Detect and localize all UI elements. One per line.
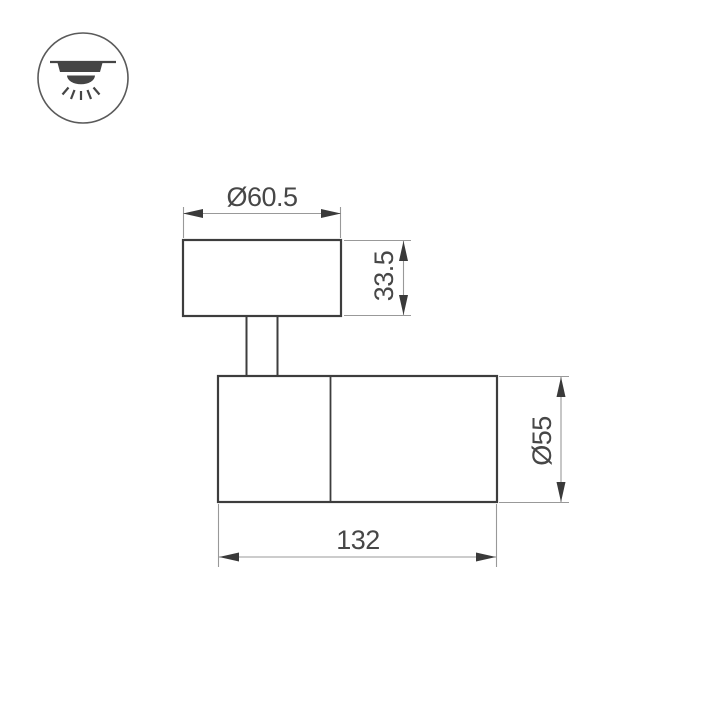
dimension-canopy-diameter: Ø60.5 (183, 182, 341, 238)
stem-outline (247, 316, 278, 377)
body-outline (218, 376, 497, 502)
icon-fixture-housing (57, 61, 103, 72)
dimension-label-body-diameter: Ø55 (527, 416, 557, 466)
dimension-body-diameter: Ø55 (499, 377, 569, 503)
canopy-outline (183, 240, 341, 316)
technical-drawing: Ø60.5 33.5 Ø55 132 (0, 0, 720, 720)
icon-light-rays (63, 88, 100, 101)
dimension-label-body-length: 132 (336, 525, 380, 555)
icon-lamp-dome (67, 76, 95, 85)
dimension-canopy-height: 33.5 (344, 241, 411, 316)
dimension-label-canopy-diameter: Ø60.5 (226, 182, 297, 212)
recessed-downlight-icon (38, 33, 128, 123)
drawing-canvas: Ø60.5 33.5 Ø55 132 (0, 0, 720, 720)
dimension-label-canopy-height: 33.5 (369, 251, 399, 302)
dimension-body-length: 132 (219, 504, 497, 567)
